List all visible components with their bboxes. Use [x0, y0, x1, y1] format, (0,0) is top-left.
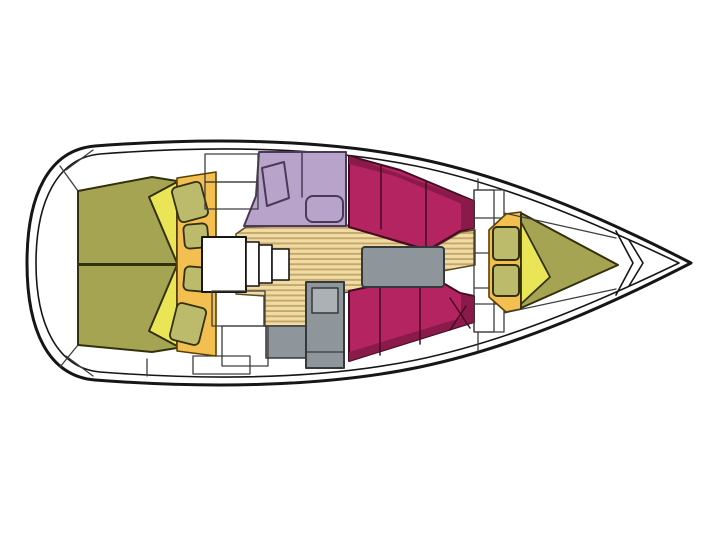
companionway-step-3 — [259, 245, 272, 283]
aft-cabin — [78, 172, 216, 356]
galley-stove — [306, 196, 343, 222]
saloon-table — [362, 247, 444, 287]
heads-floor — [266, 326, 306, 358]
v-berth-cushion-1 — [493, 227, 519, 260]
companionway-step-1 — [202, 237, 246, 292]
boat-floorplan — [0, 0, 720, 539]
heads-door-window — [312, 288, 338, 313]
galley-sink — [262, 162, 289, 206]
settee-port-end-panel — [461, 197, 474, 230]
settee-starboard-end-panel — [461, 294, 474, 324]
v-berth-cushion-2 — [493, 265, 519, 296]
companionway-step-4 — [272, 249, 289, 280]
floorplan-svg — [0, 0, 720, 539]
companionway-step-2 — [246, 242, 259, 286]
galley — [244, 152, 346, 226]
